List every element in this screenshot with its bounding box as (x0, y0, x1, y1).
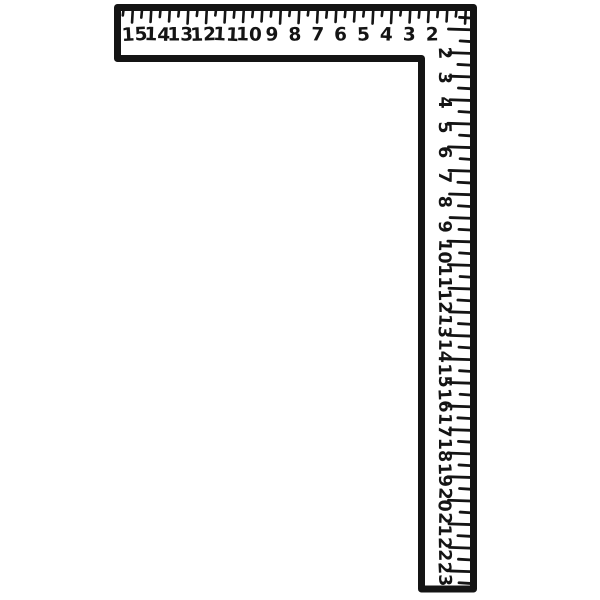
half-inch-tick (308, 10, 309, 15)
half-inch-tick (160, 10, 161, 17)
half-inch-tick (456, 10, 457, 17)
inch-tick (188, 10, 189, 24)
half-inch-tick (459, 112, 470, 113)
half-inch-tick (400, 10, 401, 15)
inch-tick (354, 10, 355, 21)
inch-tick (428, 10, 429, 22)
v-scale-label-18: 18 (434, 438, 454, 462)
half-inch-tick (419, 10, 420, 18)
half-inch-tick (271, 10, 272, 17)
v-scale-label-6: 6 (434, 146, 455, 159)
h-scale-label-4: 4 (379, 24, 393, 46)
h-scale-label-7: 7 (311, 24, 325, 45)
half-inch-tick (215, 10, 216, 15)
half-inch-tick (437, 10, 438, 17)
v-scale-label-8: 8 (434, 196, 454, 209)
inch-tick (299, 10, 300, 23)
h-scale-label-6: 6 (334, 25, 347, 46)
half-inch-tick (460, 17, 470, 18)
framing-square: 15141312111098765432 2345678910111213141… (0, 0, 600, 600)
inch-tick (206, 10, 207, 23)
inch-tick (448, 29, 470, 30)
inch-tick (450, 194, 470, 195)
half-inch-tick (382, 10, 383, 16)
half-inch-tick (460, 253, 470, 254)
inch-tick (225, 10, 226, 23)
half-inch-tick (460, 394, 470, 395)
inch-tick (317, 10, 318, 23)
v-scale-label-13: 13 (433, 313, 454, 338)
h-scale-label-9: 9 (265, 24, 278, 45)
half-inch-tick (123, 10, 124, 15)
half-inch-tick (460, 276, 470, 277)
v-scale-label-11: 11 (434, 264, 454, 288)
v-scale-label-19: 19 (434, 462, 455, 487)
half-inch-tick (458, 324, 470, 325)
half-inch-tick (460, 41, 470, 42)
inch-tick (336, 10, 337, 22)
half-inch-tick (458, 441, 470, 442)
half-inch-tick (234, 10, 235, 18)
inch-tick (169, 10, 170, 21)
v-scale-label-15: 15 (434, 363, 454, 388)
half-inch-tick (459, 229, 470, 230)
h-scale-label-3: 3 (403, 24, 416, 45)
inch-tick (373, 10, 374, 24)
half-inch-tick (252, 10, 253, 17)
v-scale-label-20: 20 (433, 487, 454, 512)
half-inch-tick (458, 536, 470, 537)
half-inch-tick (141, 10, 142, 18)
inch-tick (151, 10, 152, 22)
inch-tick (391, 10, 392, 23)
vertical-scale-labels: 234567891011121314151617181920212223 (433, 46, 454, 586)
half-inch-tick (459, 583, 470, 584)
v-scale-label-7: 7 (434, 171, 454, 184)
half-inch-tick (458, 64, 470, 65)
v-scale-label-2: 2 (434, 46, 455, 59)
h-scale-label-2: 2 (426, 24, 439, 45)
v-scale-label-14: 14 (434, 338, 454, 363)
half-inch-tick (458, 182, 470, 183)
half-inch-tick (458, 206, 470, 207)
half-inch-tick (289, 10, 290, 16)
v-scale-label-22: 22 (434, 537, 454, 562)
inch-tick (450, 218, 470, 219)
half-inch-tick (326, 10, 327, 18)
v-scale-label-9: 9 (434, 220, 455, 233)
half-inch-tick (458, 88, 470, 89)
half-inch-tick (458, 418, 470, 419)
half-inch-tick (460, 371, 470, 372)
half-inch-tick (460, 512, 470, 513)
half-inch-tick (459, 465, 470, 466)
v-scale-label-3: 3 (434, 71, 454, 84)
half-inch-tick (458, 559, 470, 560)
half-inch-tick (363, 10, 364, 17)
inch-tick (262, 10, 263, 21)
v-scale-label-5: 5 (434, 121, 454, 134)
v-scale-label-17: 17 (434, 413, 455, 438)
inch-tick (132, 10, 133, 23)
v-scale-label-12: 12 (434, 289, 455, 314)
inch-tick (243, 10, 244, 22)
inch-tick (410, 10, 411, 23)
half-inch-tick (460, 489, 470, 490)
half-inch-tick (197, 10, 198, 16)
h-scale-label-10: 10 (236, 24, 262, 45)
h-scale-label-5: 5 (357, 24, 371, 45)
half-inch-tick (460, 135, 470, 136)
v-scale-label-23: 23 (433, 561, 454, 586)
half-inch-tick (460, 159, 470, 160)
half-inch-tick (458, 300, 470, 301)
half-inch-tick (178, 10, 179, 17)
h-scale-label-8: 8 (288, 24, 302, 46)
square-outline (118, 8, 474, 590)
inch-tick (447, 10, 448, 21)
framing-square-illustration: 15141312111098765432 2345678910111213141… (0, 0, 600, 600)
v-scale-label-21: 21 (434, 512, 454, 537)
v-scale-label-10: 10 (434, 239, 455, 264)
v-scale-label-16: 16 (433, 388, 454, 413)
half-inch-tick (459, 347, 470, 348)
half-inch-tick (345, 10, 346, 17)
inch-tick (280, 10, 281, 24)
v-scale-label-4: 4 (434, 97, 454, 109)
